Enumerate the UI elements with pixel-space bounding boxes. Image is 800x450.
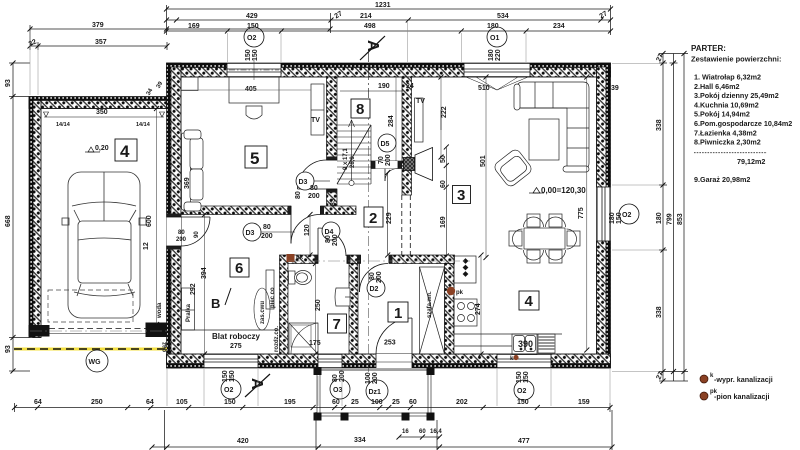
svg-text:429: 429 — [246, 13, 258, 20]
svg-text:80: 80 — [178, 230, 185, 236]
svg-text:60: 60 — [440, 180, 447, 188]
svg-text:150: 150 — [224, 399, 236, 406]
svg-text:TV: TV — [311, 117, 320, 124]
svg-text:6: 6 — [235, 260, 243, 277]
svg-text:3.Pokój dzienny 25,49m2: 3.Pokój dzienny 25,49m2 — [694, 91, 779, 100]
svg-text:150: 150 — [222, 370, 229, 382]
svg-text:250: 250 — [91, 399, 103, 406]
svg-text:14/14: 14/14 — [136, 122, 151, 128]
svg-text:405: 405 — [245, 86, 257, 93]
svg-text:pk: pk — [296, 255, 304, 261]
svg-text:O2: O2 — [622, 212, 631, 219]
svg-text:200: 200 — [372, 372, 379, 384]
svg-text:775: 775 — [578, 207, 585, 219]
svg-text:79,12m2: 79,12m2 — [737, 157, 765, 166]
svg-text:338: 338 — [656, 119, 663, 131]
svg-text:8.Piwniczka 2,30m2: 8.Piwniczka 2,30m2 — [694, 138, 761, 147]
svg-text:12: 12 — [143, 242, 150, 250]
svg-text:39: 39 — [611, 85, 619, 92]
svg-text:150: 150 — [517, 399, 529, 406]
svg-text:394: 394 — [201, 267, 208, 279]
svg-text:70: 70 — [378, 156, 385, 164]
svg-text:275: 275 — [230, 343, 242, 350]
svg-text:150: 150 — [252, 49, 259, 61]
svg-text:180: 180 — [488, 49, 495, 61]
svg-text:150: 150 — [245, 49, 252, 61]
svg-text:357: 357 — [95, 39, 107, 46]
svg-text:TV: TV — [416, 98, 425, 105]
svg-text:25: 25 — [351, 399, 359, 406]
svg-text:Pralka: Pralka — [186, 303, 192, 322]
svg-text:93: 93 — [5, 345, 12, 353]
svg-text:175: 175 — [309, 340, 321, 347]
svg-text:O3: O3 — [333, 387, 342, 394]
svg-text:1. Wiatrołap 6,32m2: 1. Wiatrołap 6,32m2 — [694, 73, 761, 82]
svg-text:93: 93 — [5, 79, 12, 87]
svg-text:195: 195 — [284, 399, 296, 406]
svg-text:WG: WG — [89, 359, 102, 366]
svg-text:668: 668 — [5, 215, 12, 227]
svg-text:379: 379 — [92, 22, 104, 29]
svg-text:369: 369 — [184, 177, 191, 189]
svg-text:piec co: piec co — [270, 287, 276, 308]
svg-text:83: 83 — [330, 198, 337, 206]
svg-text:64: 64 — [146, 399, 154, 406]
svg-text:80: 80 — [263, 224, 271, 231]
svg-text:477: 477 — [518, 438, 530, 445]
svg-text:90: 90 — [194, 231, 200, 238]
svg-text:D2: D2 — [370, 286, 379, 293]
svg-text:501: 501 — [480, 155, 487, 167]
svg-text:24: 24 — [406, 83, 414, 90]
svg-text:Blat roboczy: Blat roboczy — [212, 332, 261, 341]
svg-text:100: 100 — [365, 372, 372, 384]
svg-text:200: 200 — [261, 233, 273, 240]
svg-text:334: 334 — [354, 437, 366, 444]
svg-text:-wypr. kanalizacji: -wypr. kanalizacji — [714, 375, 773, 384]
svg-text:80: 80 — [310, 185, 318, 192]
svg-text:D3: D3 — [299, 179, 308, 186]
svg-text:202: 202 — [456, 399, 468, 406]
svg-text:60: 60 — [419, 429, 426, 435]
svg-text:338: 338 — [656, 306, 663, 318]
svg-text:350: 350 — [96, 109, 108, 116]
svg-text:0,20: 0,20 — [95, 145, 109, 152]
svg-text:O2: O2 — [247, 35, 256, 42]
svg-text:4.Kuchnia 10,69m2: 4.Kuchnia 10,69m2 — [694, 100, 759, 109]
svg-text:szafa.wn.: szafa.wn. — [427, 291, 433, 318]
svg-text:Dz1: Dz1 — [369, 389, 382, 396]
svg-text:7.Łazienka 4,38m2: 7.Łazienka 4,38m2 — [694, 128, 757, 137]
svg-text:50: 50 — [440, 155, 447, 163]
svg-text:169: 169 — [188, 23, 200, 30]
svg-text:1231: 1231 — [375, 2, 391, 9]
svg-text:390: 390 — [518, 339, 533, 349]
svg-text:gaz: gaz — [162, 342, 168, 352]
svg-text:120: 120 — [304, 224, 311, 236]
svg-text:O2: O2 — [517, 388, 526, 395]
svg-text:25: 25 — [392, 399, 400, 406]
svg-text:2.Hall 6,46m2: 2.Hall 6,46m2 — [694, 82, 740, 91]
svg-text:180: 180 — [609, 212, 616, 224]
svg-text:600: 600 — [146, 215, 153, 227]
svg-text:799: 799 — [667, 213, 674, 225]
svg-text:pk: pk — [456, 290, 464, 296]
svg-text:105: 105 — [176, 399, 188, 406]
svg-text:150: 150 — [247, 23, 259, 30]
svg-text:6.Pom.gospodarcze 10,84m2: 6.Pom.gospodarcze 10,84m2 — [694, 119, 792, 128]
svg-text:284: 284 — [388, 115, 395, 127]
svg-text:100: 100 — [371, 399, 383, 406]
svg-text:222: 222 — [441, 106, 448, 118]
svg-text:64: 64 — [34, 399, 42, 406]
svg-text:O2: O2 — [224, 387, 233, 394]
svg-text:-pion kanalizacji: -pion kanalizacji — [714, 392, 770, 401]
svg-text:PARTER:: PARTER: — [691, 44, 726, 53]
svg-text:292: 292 — [190, 283, 197, 295]
svg-text:159: 159 — [578, 399, 590, 406]
svg-text:250: 250 — [315, 299, 322, 311]
svg-text:200: 200 — [385, 154, 392, 166]
svg-text:534: 534 — [497, 13, 509, 20]
svg-text:190: 190 — [378, 83, 390, 90]
svg-text:5.Pokój 14,94m2: 5.Pokój 14,94m2 — [694, 110, 750, 119]
svg-text:180: 180 — [656, 212, 663, 224]
svg-text:234: 234 — [553, 23, 565, 30]
svg-text:16,4: 16,4 — [430, 429, 442, 435]
svg-text:200: 200 — [332, 234, 339, 246]
svg-text:60: 60 — [332, 399, 340, 406]
svg-text:150: 150 — [616, 212, 623, 224]
svg-text:229: 229 — [386, 212, 393, 224]
svg-text:8: 8 — [356, 101, 364, 118]
svg-text:80: 80 — [325, 235, 332, 243]
svg-text:D5: D5 — [381, 141, 390, 148]
svg-text:A: A — [248, 378, 265, 390]
svg-text:80: 80 — [332, 374, 339, 382]
svg-text:150: 150 — [523, 371, 530, 383]
svg-text:O1: O1 — [490, 35, 499, 42]
svg-text:16: 16 — [402, 429, 409, 435]
svg-text:4: 4 — [120, 142, 130, 161]
svg-text:180: 180 — [487, 23, 499, 30]
svg-text:169: 169 — [440, 216, 447, 228]
svg-text:80: 80 — [295, 191, 302, 199]
svg-text:0,00=120,30: 0,00=120,30 — [541, 186, 586, 195]
svg-text:274: 274 — [475, 303, 482, 315]
svg-text:5: 5 — [250, 149, 259, 168]
svg-text:420: 420 — [237, 438, 249, 445]
svg-text:150: 150 — [229, 370, 236, 382]
svg-text:1: 1 — [394, 305, 402, 322]
svg-text:28,0: 28,0 — [350, 156, 356, 168]
svg-text:rozdz.co.: rozdz.co. — [274, 326, 280, 352]
svg-text:200: 200 — [339, 370, 346, 382]
svg-text:D3: D3 — [246, 230, 255, 237]
svg-text:9 x 17,1: 9 x 17,1 — [343, 148, 349, 170]
svg-text:zas.cwu: zas.cwu — [260, 301, 266, 324]
svg-text:60: 60 — [409, 399, 417, 406]
svg-text:253: 253 — [384, 340, 396, 347]
svg-text:200: 200 — [376, 271, 383, 283]
svg-text:150: 150 — [516, 371, 523, 383]
svg-text:7: 7 — [333, 316, 341, 333]
svg-text:220: 220 — [495, 49, 502, 61]
svg-text:80: 80 — [369, 272, 376, 280]
svg-text:14/14: 14/14 — [56, 122, 71, 128]
svg-text:498: 498 — [364, 23, 376, 30]
svg-text:510: 510 — [478, 85, 490, 92]
svg-text:woda: woda — [157, 302, 163, 319]
svg-text:9.Garaż 20,98m2: 9.Garaż 20,98m2 — [694, 175, 750, 184]
svg-text:200: 200 — [308, 193, 320, 200]
svg-text:B: B — [211, 296, 220, 311]
svg-text:2: 2 — [369, 210, 377, 227]
svg-text:3: 3 — [457, 187, 465, 204]
svg-text:214: 214 — [360, 13, 372, 20]
svg-text:4: 4 — [525, 293, 534, 310]
svg-text:853: 853 — [677, 213, 684, 225]
svg-text:Zestawienie powierzchni:: Zestawienie powierzchni: — [691, 55, 781, 64]
svg-text:200: 200 — [176, 237, 187, 243]
